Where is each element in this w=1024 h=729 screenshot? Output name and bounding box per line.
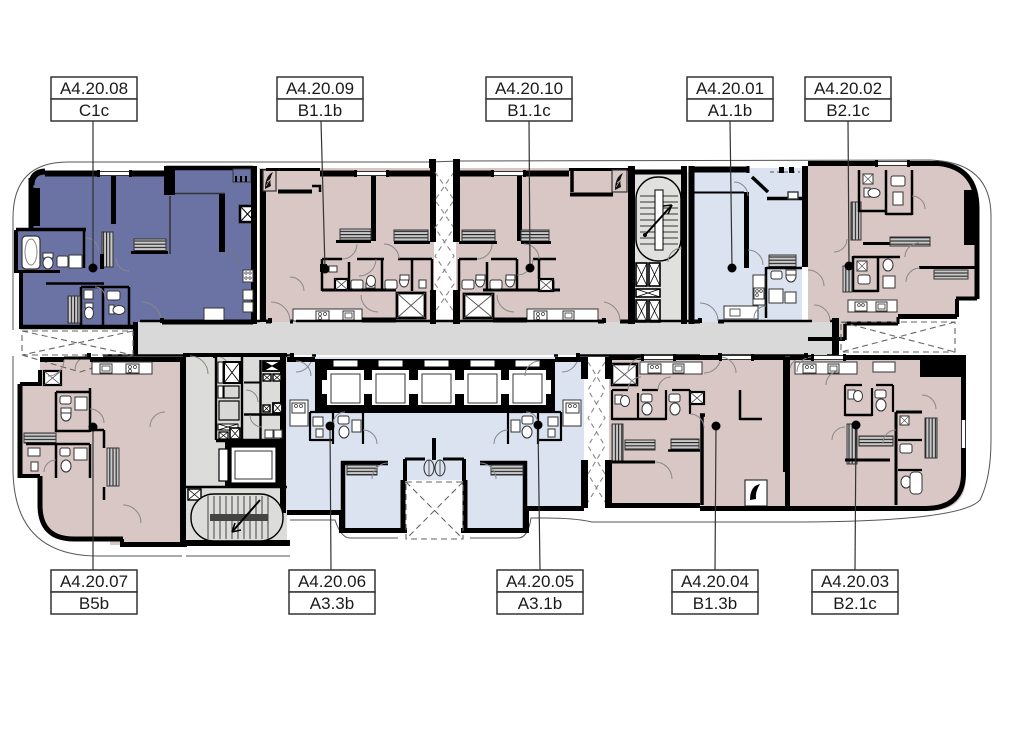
svg-text:B2.1c: B2.1c — [833, 594, 877, 613]
svg-text:B5b: B5b — [79, 594, 109, 613]
svg-text:A4.20.06: A4.20.06 — [298, 572, 366, 591]
svg-text:A4.20.05: A4.20.05 — [506, 572, 574, 591]
svg-text:A1.1b: A1.1b — [708, 101, 752, 120]
svg-text:B2.1c: B2.1c — [826, 101, 870, 120]
svg-text:A4.20.01: A4.20.01 — [696, 79, 764, 98]
svg-text:A4.20.02: A4.20.02 — [814, 79, 882, 98]
svg-text:A3.1b: A3.1b — [518, 594, 562, 613]
svg-text:A4.20.09: A4.20.09 — [286, 79, 354, 98]
svg-text:B1.1b: B1.1b — [298, 101, 342, 120]
svg-text:C1c: C1c — [79, 101, 110, 120]
svg-text:A4.20.07: A4.20.07 — [60, 572, 128, 591]
svg-text:B1.1c: B1.1c — [507, 101, 551, 120]
svg-text:A3.3b: A3.3b — [310, 594, 354, 613]
svg-text:A4.20.10: A4.20.10 — [495, 79, 563, 98]
svg-text:A4.20.04: A4.20.04 — [681, 572, 749, 591]
svg-text:B1.3b: B1.3b — [693, 594, 737, 613]
svg-text:A4.20.08: A4.20.08 — [60, 79, 128, 98]
svg-text:A4.20.03: A4.20.03 — [821, 572, 889, 591]
